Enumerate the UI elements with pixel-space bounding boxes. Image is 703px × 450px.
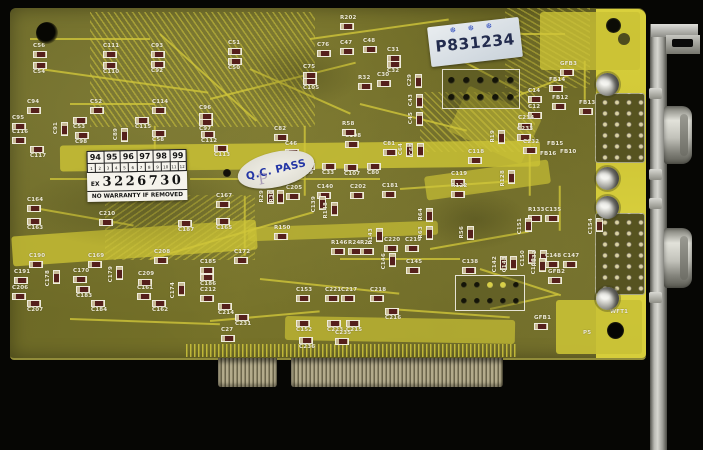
component-C170: C170 [73, 269, 89, 283]
component-C154: C154 [589, 218, 603, 234]
component-label: C53 [73, 125, 85, 131]
chip-body [360, 248, 374, 255]
warranty-month-cell: 3 [104, 164, 111, 172]
component-label: C185 [200, 260, 216, 266]
chip-body [525, 218, 532, 232]
component-label: R56 [460, 226, 466, 239]
warranty-month-cell: 12 [178, 162, 185, 170]
component-C190: C190 [29, 254, 45, 268]
chip-body [116, 266, 123, 280]
component-label: C46 [285, 142, 297, 148]
component-C30: C30 [377, 73, 391, 87]
chip-body [88, 261, 102, 268]
chip-body [200, 295, 214, 302]
vga-connector-bottom [664, 228, 692, 288]
chip-body [467, 226, 474, 240]
component-R202: R202 [340, 16, 357, 30]
chip-body [33, 51, 47, 58]
via-hole-center [223, 169, 231, 177]
component-label: C76 [317, 43, 329, 49]
chip-body [27, 300, 41, 307]
component-label: C170 [73, 269, 89, 275]
component-FB15: FB15 [547, 142, 563, 148]
component-C89: C89 [114, 128, 128, 142]
component-C161: C161 [137, 286, 153, 300]
chip-body [462, 267, 476, 274]
component-C54: C54 [33, 62, 47, 76]
chip-body [350, 192, 364, 199]
component-R122: R122 [451, 184, 468, 198]
chip-body [228, 48, 242, 55]
component-label: R58 [342, 122, 355, 128]
chip-body [416, 112, 423, 126]
component-label: C89 [114, 128, 120, 140]
chip-body [325, 295, 339, 302]
component-GFB3: GFB3 [560, 62, 577, 76]
component-C111: C111 [103, 44, 119, 58]
component-C118: C118 [468, 150, 484, 164]
chip-body [331, 202, 338, 216]
component-label: C29 [408, 74, 414, 86]
chip-body [548, 277, 562, 284]
component-label: C91 [54, 122, 60, 134]
chip-body [76, 286, 90, 293]
chip-body [178, 282, 185, 296]
component-C56: C56 [33, 44, 47, 58]
serial-number: 3226730 [102, 173, 183, 190]
component-C108: C108 [345, 134, 361, 148]
component-FB10: FB10 [560, 150, 576, 156]
component-C29: C29 [408, 74, 422, 88]
component-R143: R143 [369, 228, 383, 245]
component-C216: C216 [385, 308, 401, 322]
component-label: C30 [377, 73, 389, 79]
component-label: C94 [27, 100, 39, 106]
component-FB13: FB13 [579, 101, 595, 115]
component-label: C58 [152, 138, 164, 144]
component-C75: C75 [303, 65, 317, 79]
component-label: C116 [12, 130, 28, 136]
component-label: C119 [451, 172, 467, 178]
component-label: R24 [348, 241, 361, 247]
component-label: C202 [350, 185, 366, 191]
chip-body [317, 50, 331, 57]
chip-body [274, 134, 288, 141]
component-C209: C209 [138, 272, 154, 286]
component-label: P5 [583, 331, 591, 337]
component-C50: C50 [228, 58, 242, 72]
chip-body [91, 300, 105, 307]
warranty-month-cell: 6 [129, 163, 136, 171]
component-C220: C220 [384, 238, 400, 252]
chip-body [121, 128, 128, 142]
chip-body [367, 163, 381, 170]
component-C110: C110 [103, 62, 119, 76]
component-R32: R32 [358, 76, 372, 90]
component-label: R150 [274, 226, 291, 232]
component-R30: R30 [270, 190, 284, 204]
chip-body [363, 46, 377, 53]
component-label: C93 [151, 44, 163, 50]
component-C205: C205 [286, 186, 302, 200]
component-label: C110 [103, 70, 119, 76]
component-label: C14 [528, 89, 540, 95]
component-label: C187 [178, 228, 194, 234]
component-C113: C113 [214, 145, 230, 159]
component-label: R32 [358, 76, 371, 82]
component-C105: C105 [303, 78, 319, 92]
chip-body [358, 83, 372, 90]
component-label: R122 [451, 184, 468, 190]
component-label: C140 [317, 185, 333, 191]
chip-body [426, 226, 433, 240]
warranty-month-cell: 9 [154, 162, 161, 170]
component-label: C111 [103, 44, 119, 50]
component-label: C179 [109, 266, 115, 282]
warranty-warning-text: NO WARRANTY IF REMOVED [87, 189, 187, 202]
component-C148: C148 [545, 254, 561, 268]
component-label: R128 [501, 170, 507, 187]
component-label: C163 [27, 226, 43, 232]
component-label: R146 [331, 241, 348, 247]
chip-body [178, 220, 192, 227]
component-label: C216 [385, 316, 401, 322]
component-label: C172 [234, 250, 250, 256]
component-label: C105 [303, 86, 319, 92]
component-FB14: FB14 [549, 78, 565, 92]
component-label: C96 [199, 106, 211, 112]
component-C135: C135 [545, 208, 561, 222]
chip-body [341, 295, 355, 302]
component-C53: C53 [73, 117, 87, 131]
chip-body [151, 61, 165, 68]
component-label: C165 [216, 226, 232, 232]
component-C48: C48 [363, 39, 377, 53]
chip-body [468, 157, 482, 164]
warranty-month-cell: 2 [96, 164, 103, 172]
component-R146: R146 [331, 241, 348, 255]
component-C92: C92 [151, 61, 165, 75]
component-GFB1: GFB1 [534, 316, 551, 330]
component-label: C169 [88, 254, 104, 260]
component-label: R133 [528, 208, 545, 214]
component-C115: C115 [135, 117, 151, 131]
component-label: C210 [99, 212, 115, 218]
component-label: C113 [214, 153, 230, 159]
component-label: R143 [369, 228, 375, 245]
bracket-screw-bottom-1 [649, 198, 662, 209]
component-C146: C146 [382, 253, 396, 269]
component-label: C12 [528, 105, 540, 111]
chip-body [417, 143, 424, 157]
component-R19: R19 [491, 130, 505, 144]
component-C98: C98 [75, 132, 89, 146]
chip-body [303, 78, 317, 85]
component-label: R29 [260, 190, 266, 203]
component-label: R64 [419, 208, 425, 221]
chip-body [137, 293, 151, 300]
chip-body [322, 163, 336, 170]
component-label: C178 [46, 270, 52, 286]
chip-body [235, 314, 249, 321]
component-C208: C208 [154, 250, 170, 264]
component-label: C117 [30, 154, 46, 160]
component-C164: C164 [27, 198, 43, 212]
component-C51: C51 [228, 41, 242, 55]
chip-body [216, 218, 230, 225]
component-C179: C179 [109, 266, 123, 282]
component-label: GFB3 [560, 62, 577, 68]
chip-body [73, 117, 87, 124]
component-label: C27 [221, 328, 233, 334]
component-label: C80 [367, 171, 379, 177]
component-C116: C116 [12, 130, 28, 144]
component-C147: C147 [563, 254, 579, 268]
component-C117: C117 [30, 146, 46, 160]
component-label: C236 [299, 345, 315, 351]
component-C183: C183 [76, 286, 92, 300]
component-label: C45 [409, 112, 415, 124]
component-label: C52 [90, 100, 102, 106]
component-C107: C107 [344, 164, 360, 178]
component-label: C100 [532, 258, 538, 274]
chip-body [152, 130, 166, 137]
component-C43: C43 [409, 94, 423, 108]
chip-body [200, 267, 214, 274]
mounting-hole-top-left [36, 22, 58, 44]
chip-body [340, 23, 354, 30]
component-C91: C91 [54, 122, 68, 136]
chip-body [370, 295, 384, 302]
component-R150: R150 [274, 226, 291, 240]
chip-body [340, 48, 354, 55]
component-label: C232 [523, 140, 539, 146]
screw-post-3 [596, 196, 619, 219]
component-label: C151 [518, 218, 524, 234]
component-label: C191 [14, 270, 30, 276]
component-C210: C210 [99, 212, 115, 226]
component-label: C184 [91, 308, 107, 314]
component-C31: C31 [387, 48, 401, 62]
component-label: C48 [363, 39, 375, 45]
component-C185: C185 [200, 260, 216, 274]
component-label: C190 [29, 254, 45, 260]
component-GFB2: GFB2 [548, 270, 565, 284]
pcb-photo: C56C54C111C110C93C92C51C50R202C76C47C48C… [0, 0, 703, 450]
chip-body [296, 295, 310, 302]
component-label: R202 [340, 16, 357, 22]
component-C212: C212 [200, 288, 216, 302]
component-C235: C235 [335, 331, 351, 345]
chip-body [523, 147, 537, 154]
component-label: C221 [325, 288, 341, 294]
component-C221: C221 [325, 288, 341, 302]
component-C165: C165 [216, 218, 232, 232]
chip-body [345, 141, 359, 148]
bracket-screw-top-1 [649, 88, 662, 99]
component-C33: C33 [322, 163, 336, 177]
chip-body [201, 131, 215, 138]
chip-body [199, 119, 213, 126]
components-layer: C56C54C111C110C93C92C51C50R202C76C47C48C… [0, 0, 703, 450]
component-C14: C14 [528, 89, 542, 103]
component-label: C205 [286, 186, 302, 192]
chip-body [528, 96, 542, 103]
warranty-year-cell: 95 [104, 151, 120, 162]
chip-body [154, 257, 168, 264]
component-label: GFB2 [548, 270, 565, 276]
component-FB16: FB16 [540, 152, 556, 158]
component-label: C207 [27, 308, 43, 314]
chip-body [545, 261, 559, 268]
chip-body [331, 248, 345, 255]
component-C152: C152 [296, 320, 312, 334]
chip-body [563, 261, 577, 268]
component-label: FB10 [560, 150, 576, 156]
component-label: C150 [521, 250, 527, 266]
component-C202: C202 [350, 185, 366, 199]
component-label: C212 [200, 288, 216, 294]
chip-body [33, 62, 47, 69]
warranty-year-cell: 94 [87, 152, 103, 163]
warranty-sticker: 949596979899 123456789101112 EX 3226730 … [86, 149, 187, 202]
chip-body [151, 51, 165, 58]
component-C218: C218 [370, 288, 386, 302]
component-R148: R148 [324, 202, 338, 219]
component-C181: C181 [382, 184, 398, 198]
component-label: C82 [274, 127, 286, 133]
component-label: C162 [152, 308, 168, 314]
chip-body [234, 257, 248, 264]
component-C174: C174 [171, 282, 185, 298]
chip-body [53, 270, 60, 284]
component-C93: C93 [151, 44, 165, 58]
chip-body [152, 300, 166, 307]
component-C191: C191 [14, 270, 30, 284]
screw-post-2 [596, 167, 619, 190]
component-C27: C27 [221, 328, 235, 342]
component-label: WFT1 [610, 310, 628, 316]
component-label: C145 [406, 260, 422, 266]
component-label: C107 [344, 172, 360, 178]
component-C81: C81 [383, 142, 397, 156]
chip-body [426, 208, 433, 222]
warranty-month-cell: 5 [121, 163, 128, 171]
component-label: C115 [135, 125, 151, 131]
component-label: C164 [27, 198, 43, 204]
component-C94: C94 [27, 100, 41, 114]
component-R58: R58 [342, 122, 356, 136]
component-C95: C95 [12, 116, 26, 130]
component-C145: C145 [406, 260, 422, 274]
component-label: C231 [235, 322, 251, 328]
chip-body [27, 107, 41, 114]
chip-body [344, 164, 358, 171]
component-P5: P5 [583, 331, 591, 337]
component-label: C174 [171, 282, 177, 298]
component-label: C147 [563, 254, 579, 260]
chip-body [327, 320, 341, 327]
component-C186: C186 [200, 274, 216, 288]
component-C163: C163 [27, 218, 43, 232]
chip-body [200, 274, 214, 281]
component-label: C51 [228, 41, 240, 47]
component-label: C217 [341, 288, 357, 294]
screw-post-1 [596, 73, 619, 96]
component-label: C233 [517, 127, 533, 133]
chip-body [14, 277, 28, 284]
component-label: C56 [33, 44, 45, 50]
component-label: GFB1 [534, 316, 551, 322]
chip-body [286, 193, 300, 200]
component-label: C218 [370, 288, 386, 294]
chip-body [579, 108, 593, 115]
vga-connector-top [664, 106, 692, 164]
chip-body [73, 276, 87, 283]
component-label: FB15 [547, 142, 563, 148]
component-label: C234 [518, 116, 534, 122]
component-R56: R56 [460, 226, 474, 240]
warranty-year-cell: 99 [170, 150, 186, 161]
warranty-year-cell: 96 [120, 151, 136, 162]
component-label: C146 [382, 253, 388, 269]
warranty-month-cell: 8 [145, 163, 152, 171]
component-label: C135 [545, 208, 561, 214]
chip-body [90, 107, 104, 114]
component-C82: C82 [274, 127, 288, 141]
component-label: C181 [382, 184, 398, 190]
component-label: C31 [387, 48, 399, 54]
component-label: C152 [296, 328, 312, 334]
component-C231: C231 [235, 314, 251, 328]
chip-body [75, 132, 89, 139]
chip-body [389, 253, 396, 267]
component-R63: R63 [419, 226, 433, 240]
warranty-serial: EX 3226730 [87, 171, 187, 191]
component-label: C143 [503, 256, 509, 272]
component-C178: C178 [46, 270, 60, 286]
screw-post-4 [596, 287, 619, 310]
component-C138: C138 [462, 260, 478, 274]
component-C100: C100 [532, 258, 546, 274]
chip-body [342, 129, 356, 136]
chip-body [216, 201, 230, 208]
component-label: C75 [303, 65, 315, 71]
component-label: C214 [218, 311, 234, 317]
warranty-month-cell: 1 [88, 164, 95, 172]
chip-body [218, 303, 232, 310]
component-label: C114 [152, 100, 168, 106]
component-label: C118 [468, 150, 484, 156]
chip-body [296, 320, 310, 327]
component-C167: C167 [216, 194, 232, 208]
chip-body [346, 320, 360, 327]
component-label: C148 [545, 254, 561, 260]
chip-body [274, 233, 288, 240]
chip-body [508, 170, 515, 184]
warranty-month-cell: 10 [162, 162, 169, 170]
component-C47: C47 [340, 41, 354, 55]
component-label: C112 [201, 139, 217, 145]
serial-prefix: EX [91, 181, 100, 188]
warranty-month-cell: 4 [112, 163, 119, 171]
chip-body [405, 245, 419, 252]
component-label: C64 [399, 143, 405, 155]
chip-body [377, 80, 391, 87]
chip-body [382, 191, 396, 198]
component-label: C206 [12, 286, 28, 292]
chip-body [549, 85, 563, 92]
